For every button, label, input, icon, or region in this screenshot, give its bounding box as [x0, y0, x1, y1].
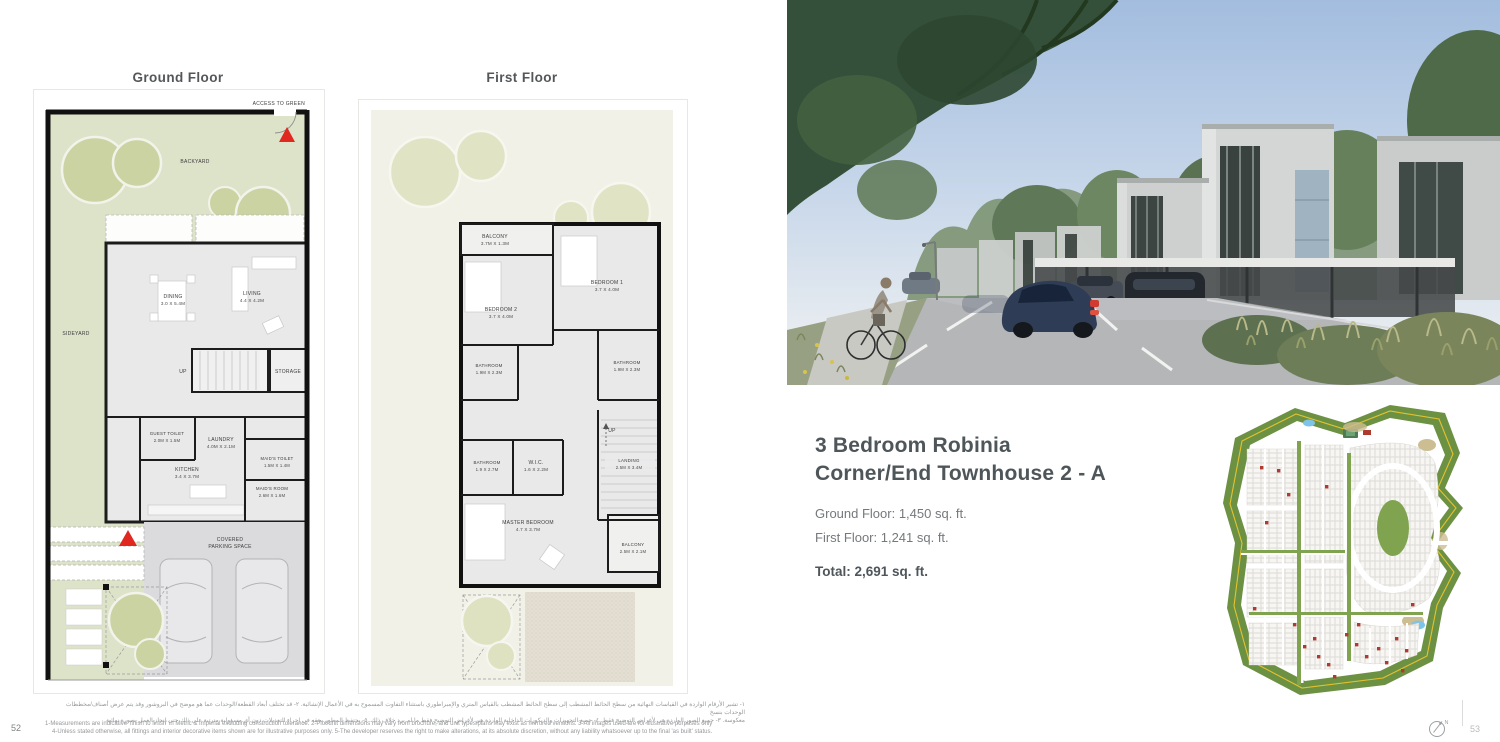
ground-door-gap [274, 108, 296, 116]
compass-north-icon: N [1427, 717, 1453, 739]
svg-text:3.4 X 3.7M: 3.4 X 3.7M [175, 474, 199, 479]
community-master-plan [1205, 393, 1500, 710]
ground-floor-plan: ACCESS TO GREEN BACKYARD SIDEYARD DINING… [33, 89, 325, 694]
maids-toilet-label: MAID'S TOILET [261, 456, 294, 461]
laundry-label: LAUNDRY [208, 437, 234, 443]
svg-text:3.7 X 4.0M: 3.7 X 4.0M [595, 287, 619, 292]
bathroom-right-label: BATHROOM [613, 360, 640, 365]
svg-text:1.6 X 2.2M: 1.6 X 2.2M [524, 467, 548, 472]
disclaimer-english-line2: 4-Unless stated otherwise, all fittings … [45, 729, 1095, 737]
living-label: LIVING [243, 291, 261, 297]
unit-areas: Ground Floor: 1,450 sq. ft. First Floor:… [815, 502, 1185, 550]
svg-text:4.4 X 4.2M: 4.4 X 4.2M [240, 298, 264, 303]
photo-illustration [787, 0, 1500, 385]
parking-label: COVERED [217, 537, 244, 543]
first-floor-plan: BALCONY 3.7M X 1.3M BEDROOM 1 3.7 X 4.0M… [358, 99, 688, 694]
maids-room-label: MAID'S ROOM [256, 486, 288, 491]
footer-divider [1462, 700, 1463, 726]
storage-label: STORAGE [275, 369, 302, 375]
svg-text:4.0M X 2.1M: 4.0M X 2.1M [207, 444, 235, 449]
ground-deck [106, 215, 304, 242]
balcony-bottom-label: BALCONY [622, 542, 645, 547]
svg-text:2.5M X 2.1M: 2.5M X 2.1M [620, 549, 647, 554]
sideyard-label: SIDEYARD [62, 331, 89, 337]
master-plan-illustration [1205, 393, 1500, 710]
ground-floor-area: Ground Floor: 1,450 sq. ft. [815, 502, 1185, 526]
svg-text:4.7 X 3.7M: 4.7 X 3.7M [516, 527, 540, 532]
master-bedroom-label: MASTER BEDROOM [502, 520, 554, 526]
disclaimer-english: 1-Measurements are indicative 'finish to… [45, 721, 1095, 736]
ground-floor-plan-drawing: ACCESS TO GREEN BACKYARD SIDEYARD DINING… [40, 97, 318, 690]
balcony-top-label: BALCONY [482, 234, 508, 240]
compass-drawing: N [1427, 717, 1453, 739]
up-label: UP [179, 369, 187, 375]
guest-toilet-label: GUEST TOILET [150, 431, 185, 436]
svg-text:1.9M X 2.3M: 1.9M X 2.3M [476, 370, 503, 375]
svg-text:3.7M X 1.3M: 3.7M X 1.3M [481, 241, 509, 246]
svg-text:3.0 X 5.4M: 3.0 X 5.4M [161, 301, 185, 306]
bedroom1-label: BEDROOM 1 [591, 280, 623, 286]
unit-title-line2: Corner/End Townhouse 2 - A [815, 462, 1106, 485]
disclaimer-english-line1: 1-Measurements are indicative 'finish to… [45, 721, 1095, 729]
backyard-label: BACKYARD [180, 159, 209, 165]
svg-text:1.9 X 2.7M: 1.9 X 2.7M [476, 467, 499, 472]
svg-text:PARKING SPACE: PARKING SPACE [208, 544, 252, 550]
unit-info: 3 Bedroom Robinia Corner/End Townhouse 2… [815, 432, 1185, 579]
unit-title-line1: 3 Bedroom Robinia [815, 434, 1011, 457]
first-floor-plan-drawing: BALCONY 3.7M X 1.3M BEDROOM 1 3.7 X 4.0M… [363, 100, 681, 690]
kitchen-label: KITCHEN [175, 467, 199, 473]
first-floor-area: First Floor: 1,241 sq. ft. [815, 526, 1185, 550]
svg-text:2.5M X 3.4M: 2.5M X 3.4M [616, 465, 643, 470]
unit-title: 3 Bedroom Robinia Corner/End Townhouse 2… [815, 432, 1185, 487]
svg-text:1.9M X 2.3M: 1.9M X 2.3M [614, 367, 641, 372]
first-floor-title: First Floor [358, 70, 686, 85]
svg-text:2.6M X 1.6M: 2.6M X 1.6M [259, 493, 286, 498]
brochure-spread: Ground Floor [0, 0, 1500, 742]
compass-n-label: N [1445, 720, 1449, 726]
svg-text:3.7 X 4.0M: 3.7 X 4.0M [489, 314, 513, 319]
first-up-label: UP [608, 428, 616, 434]
page-number-left: 52 [11, 723, 21, 733]
wic-label: W.I.C. [528, 460, 543, 466]
bathroom-bottom-label: BATHROOM [473, 460, 500, 465]
landing-label: LANDING [618, 458, 640, 463]
townhouse-street-render [787, 0, 1500, 385]
ground-floor-title: Ground Floor [33, 70, 323, 85]
dining-label: DINING [164, 294, 183, 300]
disclaimer-arabic-line1: ١- تشير الأرقام الواردة في القياسات النه… [45, 701, 745, 717]
total-area: Total: 2,691 sq. ft. [815, 564, 1185, 579]
bedroom2-label: BEDROOM 2 [485, 307, 517, 313]
access-to-green-label: ACCESS TO GREEN [253, 101, 305, 107]
page-number-right: 53 [1470, 724, 1480, 734]
svg-text:1.5M X 1.4M: 1.5M X 1.4M [264, 463, 290, 468]
bathroom-left-label: BATHROOM [475, 363, 502, 368]
svg-text:2.0M X 1.5M: 2.0M X 1.5M [154, 438, 181, 443]
